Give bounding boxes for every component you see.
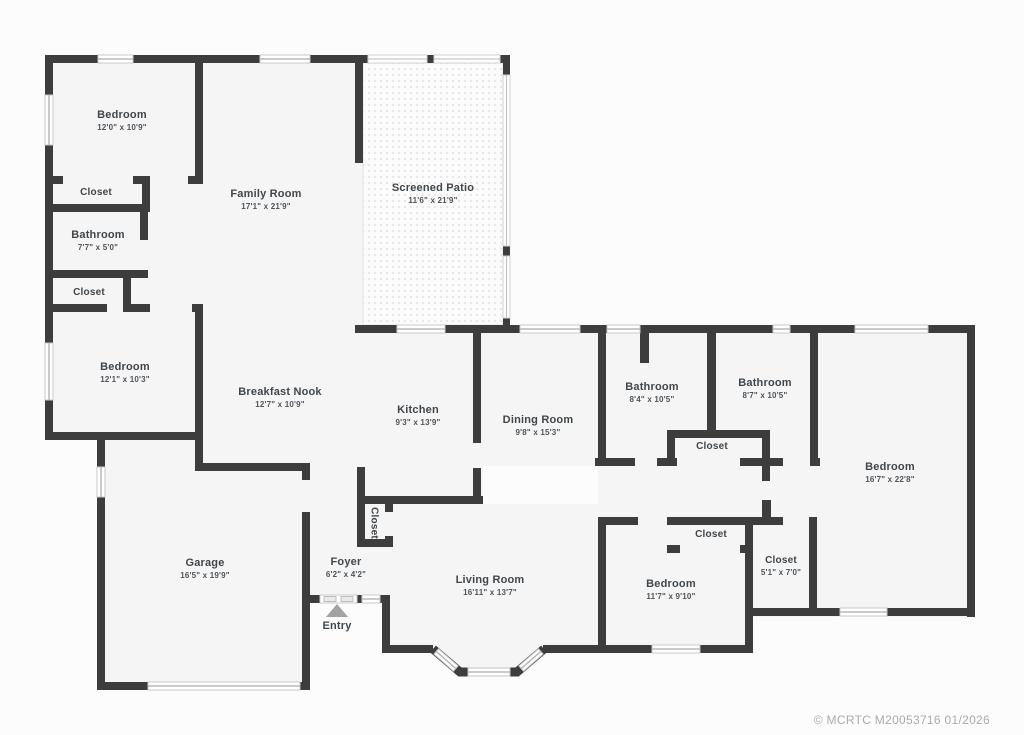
floor-plan-drawing	[0, 0, 1024, 735]
entry-door	[320, 595, 357, 603]
entry-direction-icon	[326, 604, 348, 617]
watermark-text: © MCRTC M20053716 01/2026	[814, 713, 990, 727]
patio-screen-walls	[503, 75, 510, 318]
patio-floor-texture	[363, 63, 503, 325]
garage-door	[148, 682, 300, 690]
floor-plan-page: Bedroom 12'0" x 10'9" Closet Bathroom 7'…	[0, 0, 1024, 735]
